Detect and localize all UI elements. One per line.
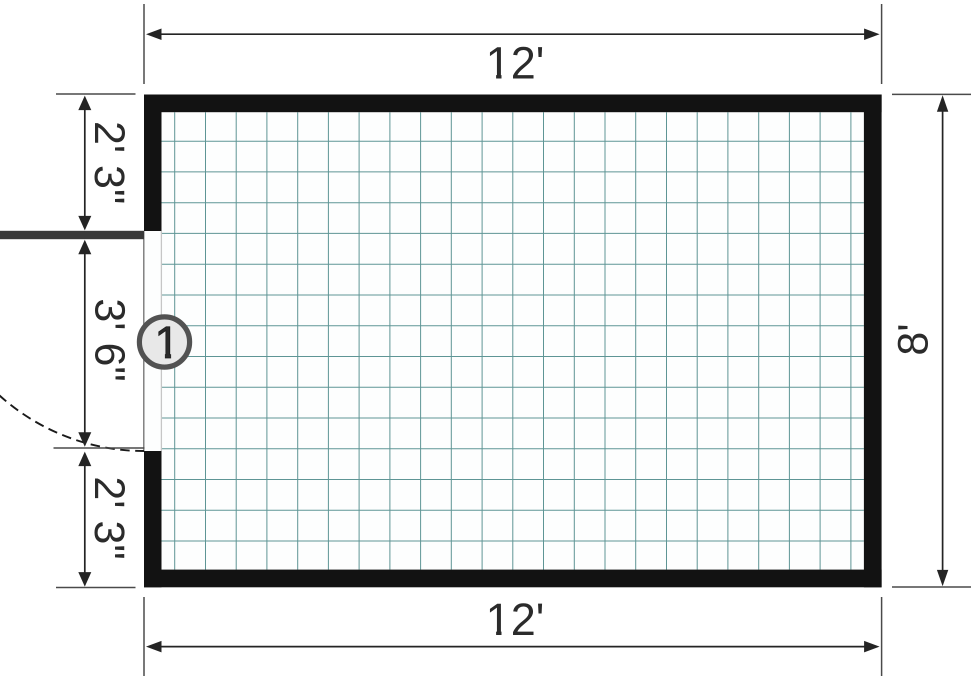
svg-text:12': 12' — [486, 38, 545, 89]
svg-text:1: 1 — [154, 317, 179, 368]
svg-text:2' 3": 2' 3" — [85, 476, 133, 559]
svg-text:3' 6": 3' 6" — [86, 298, 134, 381]
svg-text:8': 8' — [890, 323, 938, 355]
svg-text:2' 3": 2' 3" — [85, 121, 133, 204]
